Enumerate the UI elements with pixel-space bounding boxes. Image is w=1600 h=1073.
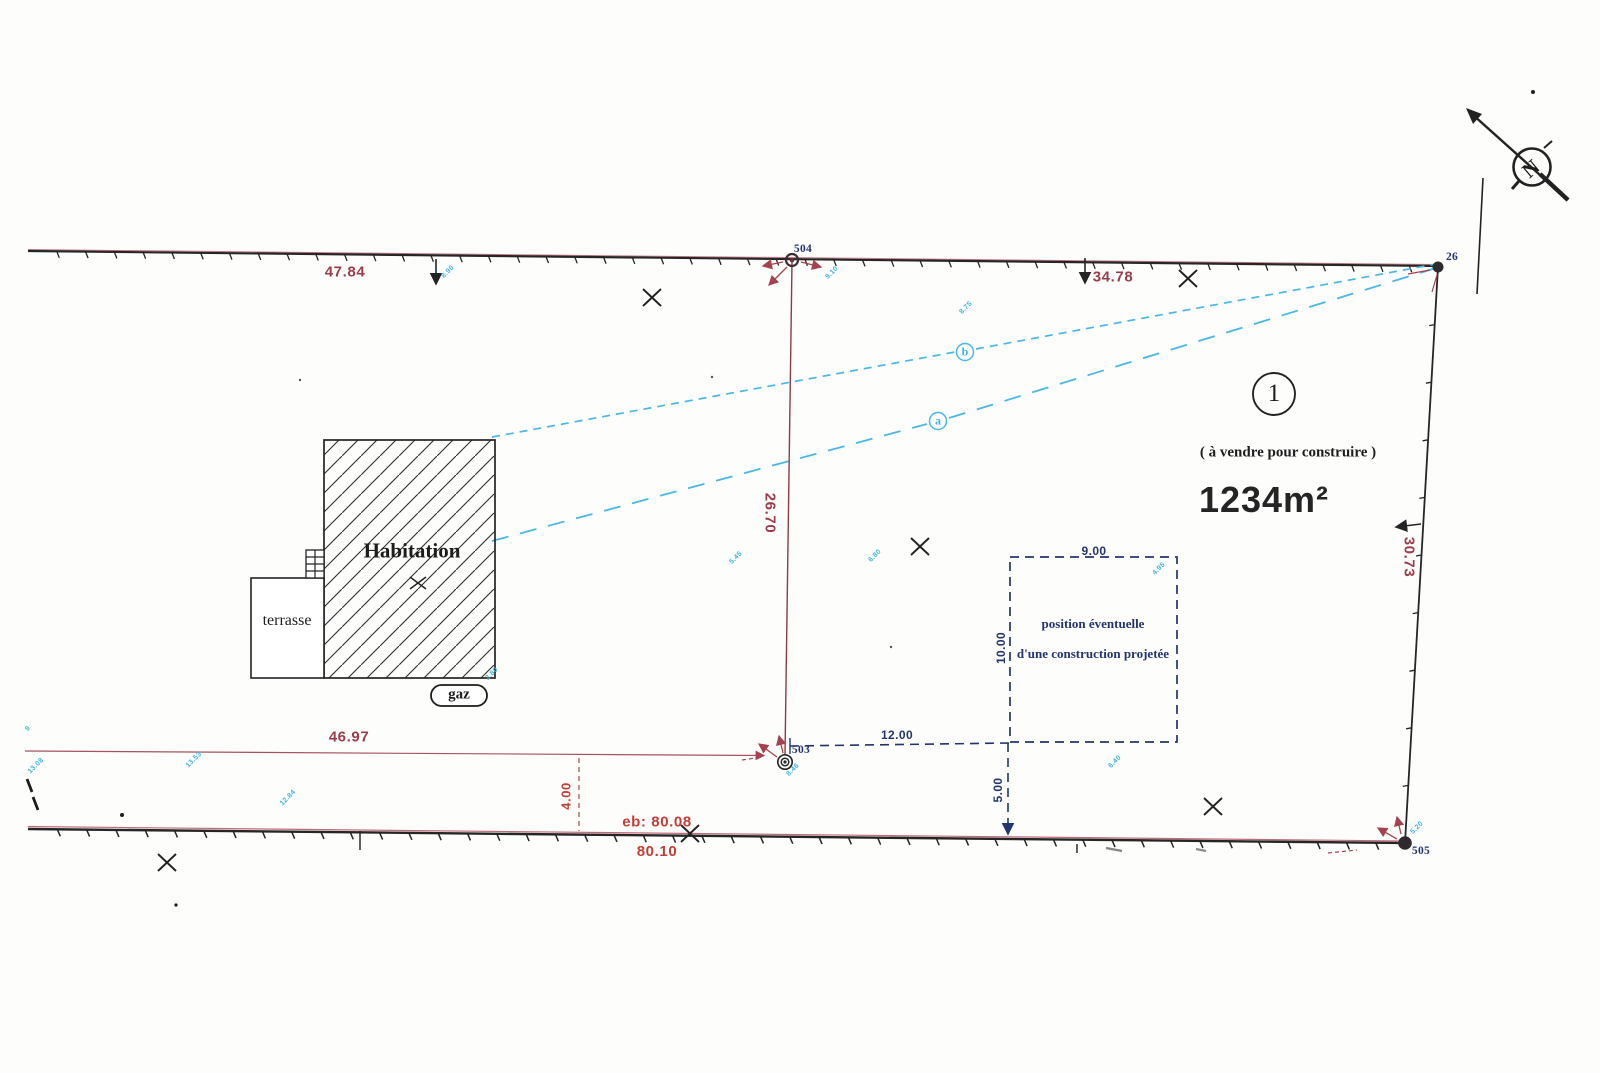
projected-depth-label: 10.00	[994, 632, 1008, 664]
line-ref-b: b	[962, 345, 969, 360]
projected-width-label: 9.00	[1082, 544, 1107, 558]
tick-arrow-3073	[1396, 524, 1421, 527]
survey-plan-page: 47.84 34.78 26.70 46.97 30.73 4.00 eb: 8…	[0, 0, 1600, 1073]
misc-marks	[27, 376, 1206, 907]
stairs	[306, 550, 324, 578]
boundary-top	[28, 250, 1438, 267]
dim-middle-vertical: 26.70	[762, 493, 779, 534]
dim-right-vertical: 30.73	[1401, 537, 1418, 578]
projected-text-line1: position éventuelle	[1042, 616, 1145, 632]
projected-text-line2: d'une construction projetée	[1017, 646, 1169, 662]
dim-top-right: 34.78	[1093, 269, 1134, 286]
dimension-line-504-503	[785, 262, 792, 755]
dim-eb-below: 80.10	[637, 843, 678, 856]
terrace-label: terrasse	[263, 612, 312, 630]
point-label-503: 503	[792, 744, 810, 756]
projected-dist-label: 12.00	[881, 728, 913, 742]
dim-eb-total: eb: 80.08	[622, 814, 692, 831]
parcel-number: 1	[1268, 380, 1281, 408]
dim-bottom-left: 46.97	[329, 729, 370, 746]
point-label-504: 504	[794, 243, 812, 255]
dim-top-left: 47.84	[325, 264, 366, 281]
parcel-area: 1234m²	[1199, 479, 1329, 521]
dim-eb-below-clip: 80.10	[626, 843, 688, 856]
point-label-505: 505	[1412, 845, 1430, 857]
survey-point-505	[1328, 817, 1412, 853]
parcel-sale-note: ( à vendre pour construire )	[1200, 445, 1376, 462]
line-ref-a: a	[935, 414, 941, 429]
boundary-extension-line	[1477, 178, 1483, 294]
plan-graphics	[0, 0, 1600, 1073]
gas-label: gaz	[448, 687, 470, 704]
projected-setback-label: 5.00	[991, 778, 1005, 803]
north-arrow	[1466, 90, 1568, 294]
dimension-line-4697	[25, 751, 764, 756]
house-label: Habitation	[364, 539, 461, 564]
point-label-26: 26	[1446, 251, 1458, 263]
dim-terrace-offset: 4.00	[559, 782, 574, 810]
